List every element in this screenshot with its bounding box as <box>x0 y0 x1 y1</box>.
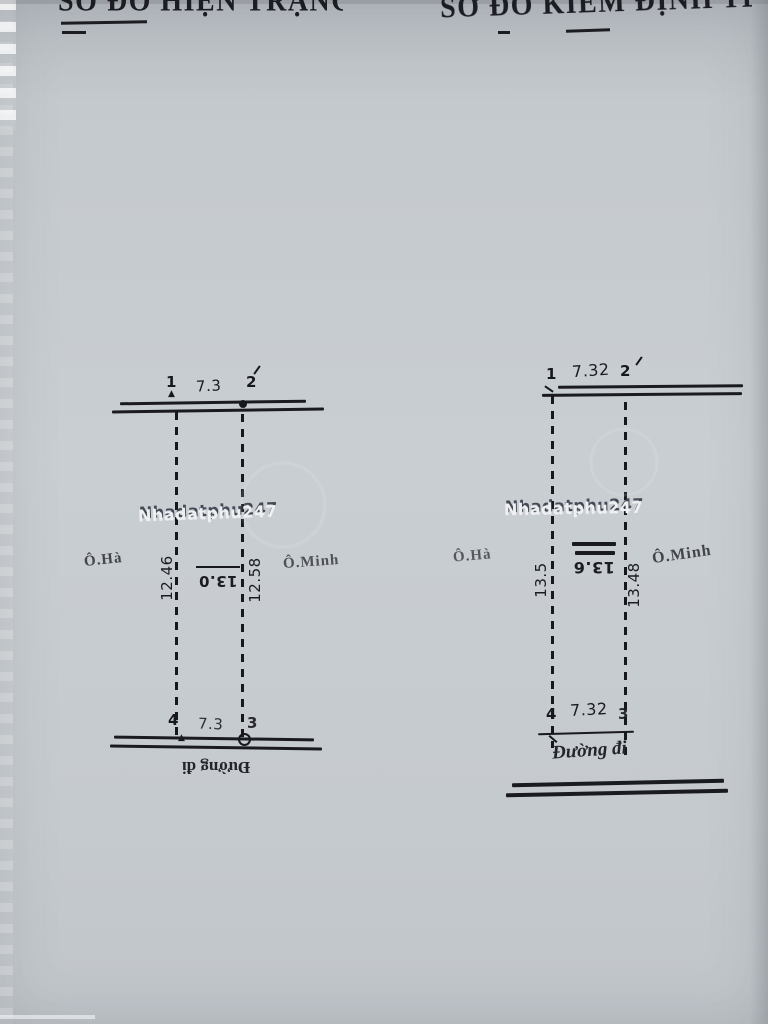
plot-right-dim-center-bar-1 <box>572 542 616 546</box>
plot-left-bottom-line-upper <box>114 736 314 742</box>
plot-right-road-label: Đường đi <box>551 737 627 764</box>
plot-left-dim-bottom: 7.3 <box>198 715 224 734</box>
plot-left-corner-2-tick <box>253 365 260 374</box>
plot-left-dim-top: 7.3 <box>196 376 222 395</box>
plot-left-corner-1-marker: ▲ <box>168 390 175 399</box>
plot-right-dim-top: 7.32 <box>571 360 610 382</box>
scan-edge-left <box>0 0 13 1024</box>
plot-left-bottom-line-lower <box>110 745 322 751</box>
plot-right-corner-4: 4 <box>546 705 556 723</box>
plot-left-neighbor-right: Ô.Minh <box>282 552 339 573</box>
plot-right-ghost-logo <box>590 428 658 496</box>
plot-left-dim-center: 13.0 <box>196 566 240 590</box>
plot-right-dim-left: 13.5 <box>532 552 548 608</box>
plot-right-top-line-lower <box>542 392 742 396</box>
plot-right-corner-1-tick <box>544 385 553 392</box>
plot-left-corner-2-marker <box>239 400 247 408</box>
scanned-land-sketch: SƠ ĐỒ HIỆN TRẠNG TL 1/500 SƠ ĐỒ KIỂM ĐỊN… <box>0 0 768 1024</box>
heading-right: SƠ ĐỒ KIỂM ĐỊNH TL 1/50 <box>440 0 752 26</box>
plot-right-dim-bottom: 7.32 <box>570 699 609 720</box>
plot-left-corner-4: 4 <box>168 711 178 729</box>
heading-right-underline <box>566 28 610 33</box>
plot-right-corner-1: 1 <box>546 365 556 383</box>
road-line-lower <box>506 789 728 798</box>
heading-left: SƠ ĐỒ HIỆN TRẠNG TL 1/500 <box>58 0 343 19</box>
plot-right-top-line-upper <box>558 384 743 388</box>
plot-right-corner-2: 2 <box>620 362 630 380</box>
road-line-upper <box>512 779 724 787</box>
plot-left-neighbor-left: Ô.Hà <box>83 550 123 571</box>
plot-left-corner-2: 2 <box>246 373 256 391</box>
scan-edge-bottom <box>0 1015 95 1019</box>
plot-right-dashed-line-left <box>551 396 554 748</box>
scan-edge-left-top <box>0 0 16 130</box>
plot-right-corner-3: 3 <box>618 705 628 723</box>
heading-right-clip: SƠ ĐỒ KIỂM ĐỊNH TL 1/50 <box>440 0 752 26</box>
plot-left-road-label: Đường đi <box>182 757 250 777</box>
plot-left-dim-right: 12.58 <box>246 548 262 612</box>
scan-shade-right <box>750 0 768 1024</box>
plot-left-dim-left: 12.46 <box>158 548 174 608</box>
heading-right-underline-2 <box>498 31 510 34</box>
plot-right-neighbor-right: Ô.Minh <box>651 542 713 568</box>
plot-right-dim-right: 13.48 <box>625 553 641 617</box>
plot-right-neighbor-left: Ô.Hà <box>452 546 492 566</box>
plot-left-corner-3: 3 <box>247 714 257 732</box>
plot-right-dim-center-bar-2 <box>575 551 615 555</box>
watermark-right: Nhadatphu247 <box>504 498 643 519</box>
plot-right-corner-2-tick <box>635 356 642 365</box>
plot-left-top-line-upper <box>120 400 306 406</box>
plot-right-dim-center: 13.6 <box>570 557 618 577</box>
plot-left-dashed-line-right <box>241 414 244 744</box>
heading-left-underline-2 <box>62 31 86 34</box>
plot-left-top-line-lower <box>112 408 324 414</box>
